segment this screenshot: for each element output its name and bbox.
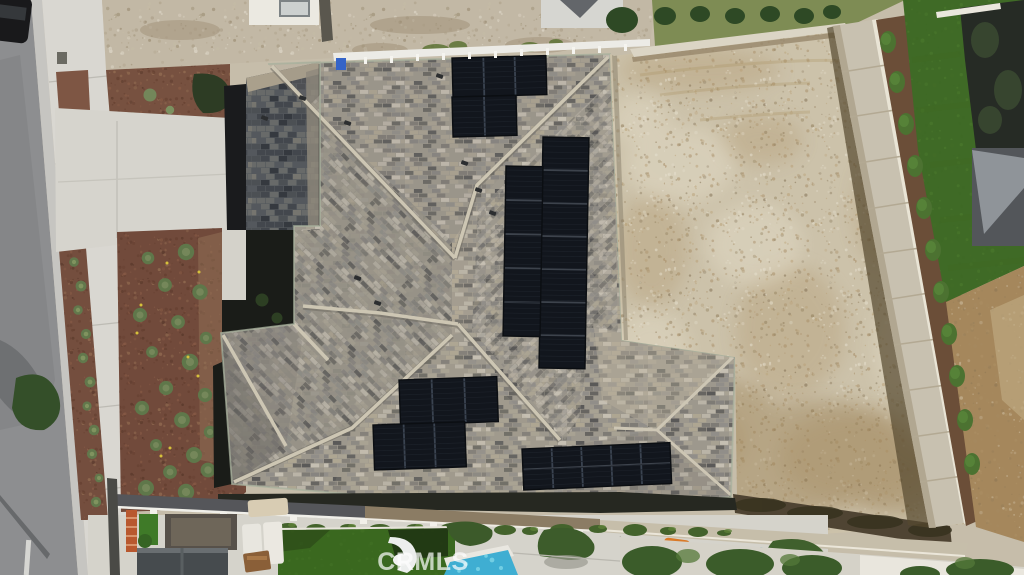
svg-text:CRMLS: CRMLS: [377, 548, 468, 575]
